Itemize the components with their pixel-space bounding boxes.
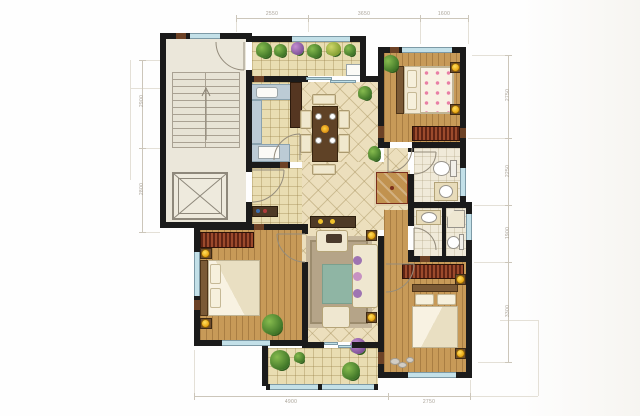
wall: [408, 202, 472, 208]
bedroom3-plant: [262, 314, 283, 335]
medallion-dot: [390, 186, 394, 190]
window: [408, 372, 456, 378]
window: [460, 168, 466, 196]
dim-tick: [420, 15, 421, 22]
bedside-lamp: [201, 249, 210, 258]
dining-chair: [338, 110, 350, 129]
sliding-door: [330, 80, 356, 83]
balcony-plant: [342, 362, 360, 380]
plate: [329, 137, 336, 144]
wall: [408, 148, 414, 152]
dim-label: 2900: [139, 87, 145, 115]
dim-tick: [194, 393, 195, 400]
floor-plan: 2550 3650 1600 4900 2750 2900 2800 2750 …: [0, 0, 640, 416]
extension-line: [194, 350, 195, 393]
extension-line: [478, 362, 508, 363]
dim-tick: [505, 362, 512, 363]
dining-chair: [312, 94, 336, 105]
master-bed: [412, 306, 458, 348]
window: [466, 214, 472, 240]
pillow: [210, 264, 221, 284]
bedside-lamp: [451, 63, 460, 72]
dim-label: 3650: [350, 11, 378, 17]
dim-tick: [308, 15, 309, 22]
door-lintel: [378, 352, 384, 364]
table-lamp: [367, 231, 376, 240]
dim-tick: [505, 262, 512, 263]
bedroom2-plant: [382, 55, 399, 72]
extension-line: [420, 20, 421, 44]
door-lintel: [254, 76, 264, 82]
railing-post: [266, 384, 270, 390]
door-lintel: [460, 128, 466, 138]
door-lintel: [280, 162, 288, 168]
rug-center: [322, 264, 356, 304]
wall: [302, 262, 308, 346]
door-lintel: [254, 224, 264, 230]
railing-post: [318, 384, 322, 390]
stair-center-rail: [205, 72, 206, 148]
pillow: [210, 288, 221, 308]
dim-label: 2750: [505, 81, 511, 109]
corridor-floor: [384, 210, 408, 262]
sofa-cushion: [353, 256, 362, 265]
decor-stone: [398, 362, 407, 368]
dim-label: 1900: [505, 219, 511, 247]
window: [190, 33, 220, 39]
bedroom2-floral-blanket: [420, 67, 453, 113]
wall: [442, 208, 446, 256]
armchair: [322, 306, 350, 328]
bath2-basin: [421, 212, 437, 223]
dim-tick: [505, 55, 512, 56]
dim-tick: [505, 205, 512, 206]
table-lamp: [367, 313, 376, 322]
terrace-plant: [326, 42, 341, 56]
dim-tick: [388, 393, 389, 400]
extension-line: [472, 55, 508, 56]
dining-chair: [300, 110, 312, 129]
toilet-tank: [450, 160, 457, 177]
dining-chair: [312, 164, 336, 175]
dim-tick: [139, 148, 146, 149]
wall: [378, 142, 390, 148]
window: [402, 47, 452, 53]
console-item: [256, 209, 260, 213]
pillow: [407, 92, 417, 110]
console-item: [263, 209, 267, 213]
bath1-basin: [439, 185, 453, 198]
door-lintel: [176, 33, 186, 39]
pillow: [415, 294, 434, 305]
dim-label: 1600: [430, 11, 458, 17]
extension-line: [468, 20, 469, 44]
dim-label: 2800: [139, 175, 145, 203]
bedroom2-headboard: [396, 66, 404, 114]
window: [194, 252, 200, 296]
terrace-plant: [307, 44, 322, 58]
sofa-cushion: [353, 272, 362, 281]
dim-tick: [236, 15, 237, 22]
sliding-door: [338, 345, 352, 348]
dim-label: 4900: [277, 399, 305, 405]
bedside-lamp: [201, 319, 210, 328]
bedroom3-wardrobe: [200, 232, 254, 248]
extension-line: [474, 262, 508, 263]
hall-plant: [368, 146, 381, 161]
master-headboard: [412, 284, 458, 292]
bedroom2-wardrobe: [412, 126, 460, 141]
wall: [408, 256, 472, 262]
window: [292, 36, 350, 42]
wall: [194, 224, 308, 230]
dim-label: 3300: [505, 297, 511, 325]
hall-plant: [358, 86, 372, 100]
pillow: [407, 70, 417, 88]
dim-tick: [139, 232, 146, 233]
railing-post: [374, 384, 378, 390]
dim-label: 2250: [505, 157, 511, 185]
wall: [302, 224, 308, 234]
plate: [315, 113, 322, 120]
extension-line: [468, 138, 508, 139]
balcony-plant: [270, 350, 290, 370]
door-lintel: [378, 126, 384, 138]
bedroom3-headboard: [200, 260, 208, 316]
pillow: [437, 294, 456, 305]
dining-chair: [300, 134, 312, 153]
table-centerpiece: [321, 125, 329, 133]
dim-line-left: [142, 60, 143, 232]
bedside-lamp: [456, 349, 465, 358]
bedside-lamp: [451, 105, 460, 114]
dim-tick: [139, 60, 146, 61]
console-item: [330, 219, 335, 224]
dim-tick: [468, 15, 469, 22]
door-lintel: [194, 300, 200, 310]
wall: [246, 168, 252, 172]
wall: [352, 342, 378, 348]
dim-label: 2750: [415, 399, 443, 405]
wall: [262, 342, 268, 386]
sliding-door: [306, 77, 332, 80]
extension-line: [470, 380, 471, 393]
neighbor-outline: [538, 320, 539, 396]
neighbor-outline: [470, 396, 538, 397]
window: [222, 340, 270, 346]
extension-line: [474, 205, 508, 206]
terrace-flower-plant: [291, 42, 304, 55]
decor-stone: [406, 357, 414, 363]
balcony-glass-railing: [266, 384, 378, 390]
sofa-cushion: [353, 289, 362, 298]
staircase: [172, 72, 240, 148]
wall: [160, 33, 166, 228]
wall: [246, 70, 252, 162]
extension-line: [130, 60, 131, 180]
stove-cooktop: [258, 146, 280, 159]
dim-line-top: [236, 18, 468, 19]
dim-line-bottom: [194, 396, 470, 397]
bedside-lamp: [456, 275, 465, 284]
plate: [315, 137, 322, 144]
wall: [408, 208, 414, 226]
balcony-plant: [294, 352, 305, 363]
plate: [329, 113, 336, 120]
door-lintel: [420, 256, 430, 262]
dim-label: 2550: [258, 11, 286, 17]
elevator-inner: [178, 178, 222, 214]
terrace-plant: [274, 44, 287, 57]
dim-tick: [470, 393, 471, 400]
dim-tick: [505, 138, 512, 139]
door-lintel: [390, 47, 399, 53]
dining-chair: [338, 134, 350, 153]
terrace-plant: [344, 44, 356, 56]
terrace-plant: [256, 42, 272, 58]
sliding-door: [324, 342, 338, 345]
wall: [412, 142, 466, 148]
toilet: [447, 236, 460, 249]
toilet: [433, 161, 450, 176]
extension-line: [130, 88, 160, 89]
kitchen-sink: [256, 87, 278, 98]
console-item: [318, 219, 323, 224]
throw-blanket: [326, 234, 342, 243]
